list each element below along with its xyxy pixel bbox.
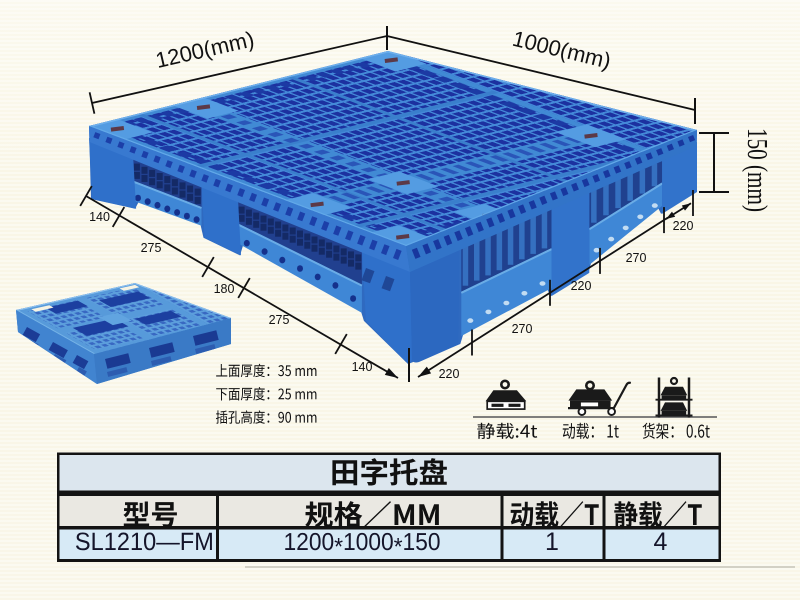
svg-text:1000(mm): 1000(mm)	[510, 26, 613, 74]
svg-text:275: 275	[141, 241, 162, 255]
svg-text:140: 140	[89, 210, 110, 224]
svg-text:1200(mm): 1200(mm)	[153, 26, 256, 73]
svg-text:180: 180	[214, 282, 235, 296]
svg-text:270: 270	[512, 322, 533, 336]
svg-text:4: 4	[654, 528, 668, 556]
svg-text:270: 270	[626, 251, 647, 265]
svg-text:1: 1	[545, 528, 559, 556]
svg-text:220: 220	[439, 367, 460, 381]
svg-text:220: 220	[673, 219, 694, 233]
svg-text:140: 140	[352, 360, 373, 374]
svg-text:220: 220	[571, 279, 592, 293]
svg-text:275: 275	[269, 313, 290, 327]
svg-text:150 (mm): 150 (mm)	[741, 128, 772, 212]
